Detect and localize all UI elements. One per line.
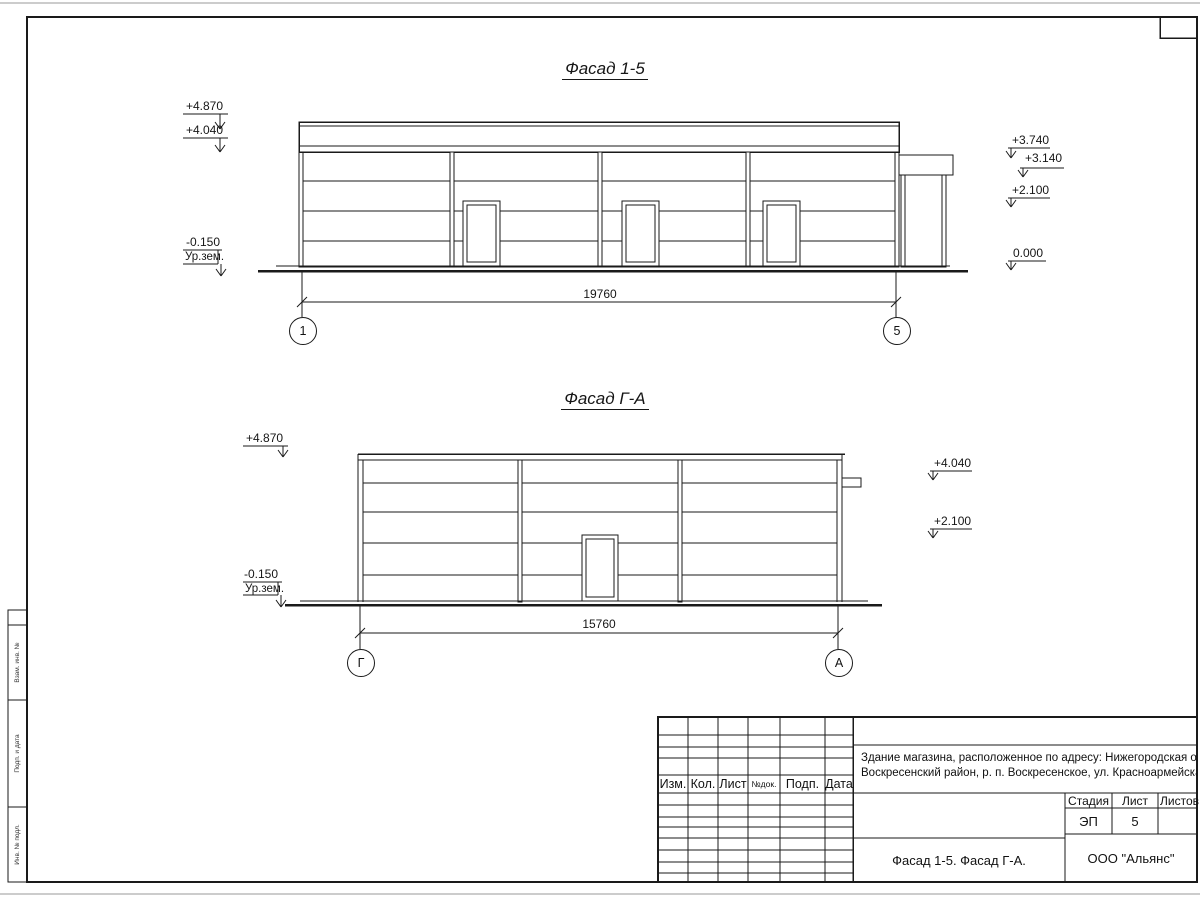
- stage-label: Стадия: [1065, 793, 1112, 808]
- titleblock-col-kol: Кол.: [688, 775, 718, 793]
- side-stamp-podp-data: Подп. и дата: [9, 700, 26, 807]
- company-name: ООО "Альянс": [1065, 834, 1197, 882]
- titleblock-col-data: Дата: [825, 775, 853, 793]
- side-stamp-vzam-inv: Взам. инв. №: [9, 625, 26, 700]
- elevation-mark-f1-0000: 0.000: [1013, 247, 1043, 260]
- elevation-mark-f1-4040: +4.040: [183, 124, 223, 137]
- dimension-label-f2: 15760: [559, 618, 639, 631]
- axis-bubble-a: А: [825, 649, 853, 677]
- axis-bubble-1: 1: [289, 317, 317, 345]
- sheets-label: Листов: [1158, 793, 1199, 808]
- project-description-line2: Воскресенский район, р. п. Воскресенское…: [861, 766, 1197, 781]
- elevation-mark-f1-3140: +3.140: [1025, 152, 1062, 165]
- sheet-label: Лист: [1112, 793, 1158, 808]
- drawing-name: Фасад 1-5. Фасад Г-А.: [853, 838, 1065, 882]
- sheet-number: 5: [1112, 808, 1158, 834]
- elevation-mark-f2-2100: +2.100: [934, 515, 971, 528]
- facade-1-5-title: Фасад 1-5: [490, 58, 720, 79]
- elevation-mark-f2-4040: +4.040: [934, 457, 971, 470]
- titleblock-col-podp: Подп.: [780, 775, 825, 793]
- elevation-mark-f2-4870: +4.870: [246, 432, 283, 445]
- elevation-mark-f1-0150: -0.150: [184, 236, 220, 249]
- facade-g-a-title: Фасад Г-А: [490, 388, 720, 409]
- titleblock-col-izm: Изм.: [658, 775, 688, 793]
- elevation-mark-f1-2100: +2.100: [1012, 184, 1049, 197]
- elevation-mark-f1-3740: +3.740: [1012, 134, 1049, 147]
- side-stamp-inv-podl: Инв. № подл.: [9, 807, 26, 882]
- drawing-sheet: Фасад 1-5 Фасад Г-А +4.870 +4.040 -0.150…: [0, 0, 1200, 900]
- elevation-mark-f1-4870: +4.870: [183, 100, 223, 113]
- axis-bubble-g: Г: [347, 649, 375, 677]
- dimension-label-f1: 19760: [560, 288, 640, 301]
- stage-value: ЭП: [1065, 808, 1112, 834]
- project-description-line1: Здание магазина, расположенное по адресу…: [861, 751, 1197, 766]
- elevation-mark-f2-0150: -0.150: [244, 568, 278, 581]
- titleblock-col-ndok: №док.: [748, 775, 780, 793]
- titleblock-col-list: Лист: [718, 775, 748, 793]
- axis-bubble-5: 5: [883, 317, 911, 345]
- ground-level-label-f2: Ур.зем.: [245, 583, 284, 596]
- ground-level-label-f1: Ур.зем.: [185, 251, 224, 264]
